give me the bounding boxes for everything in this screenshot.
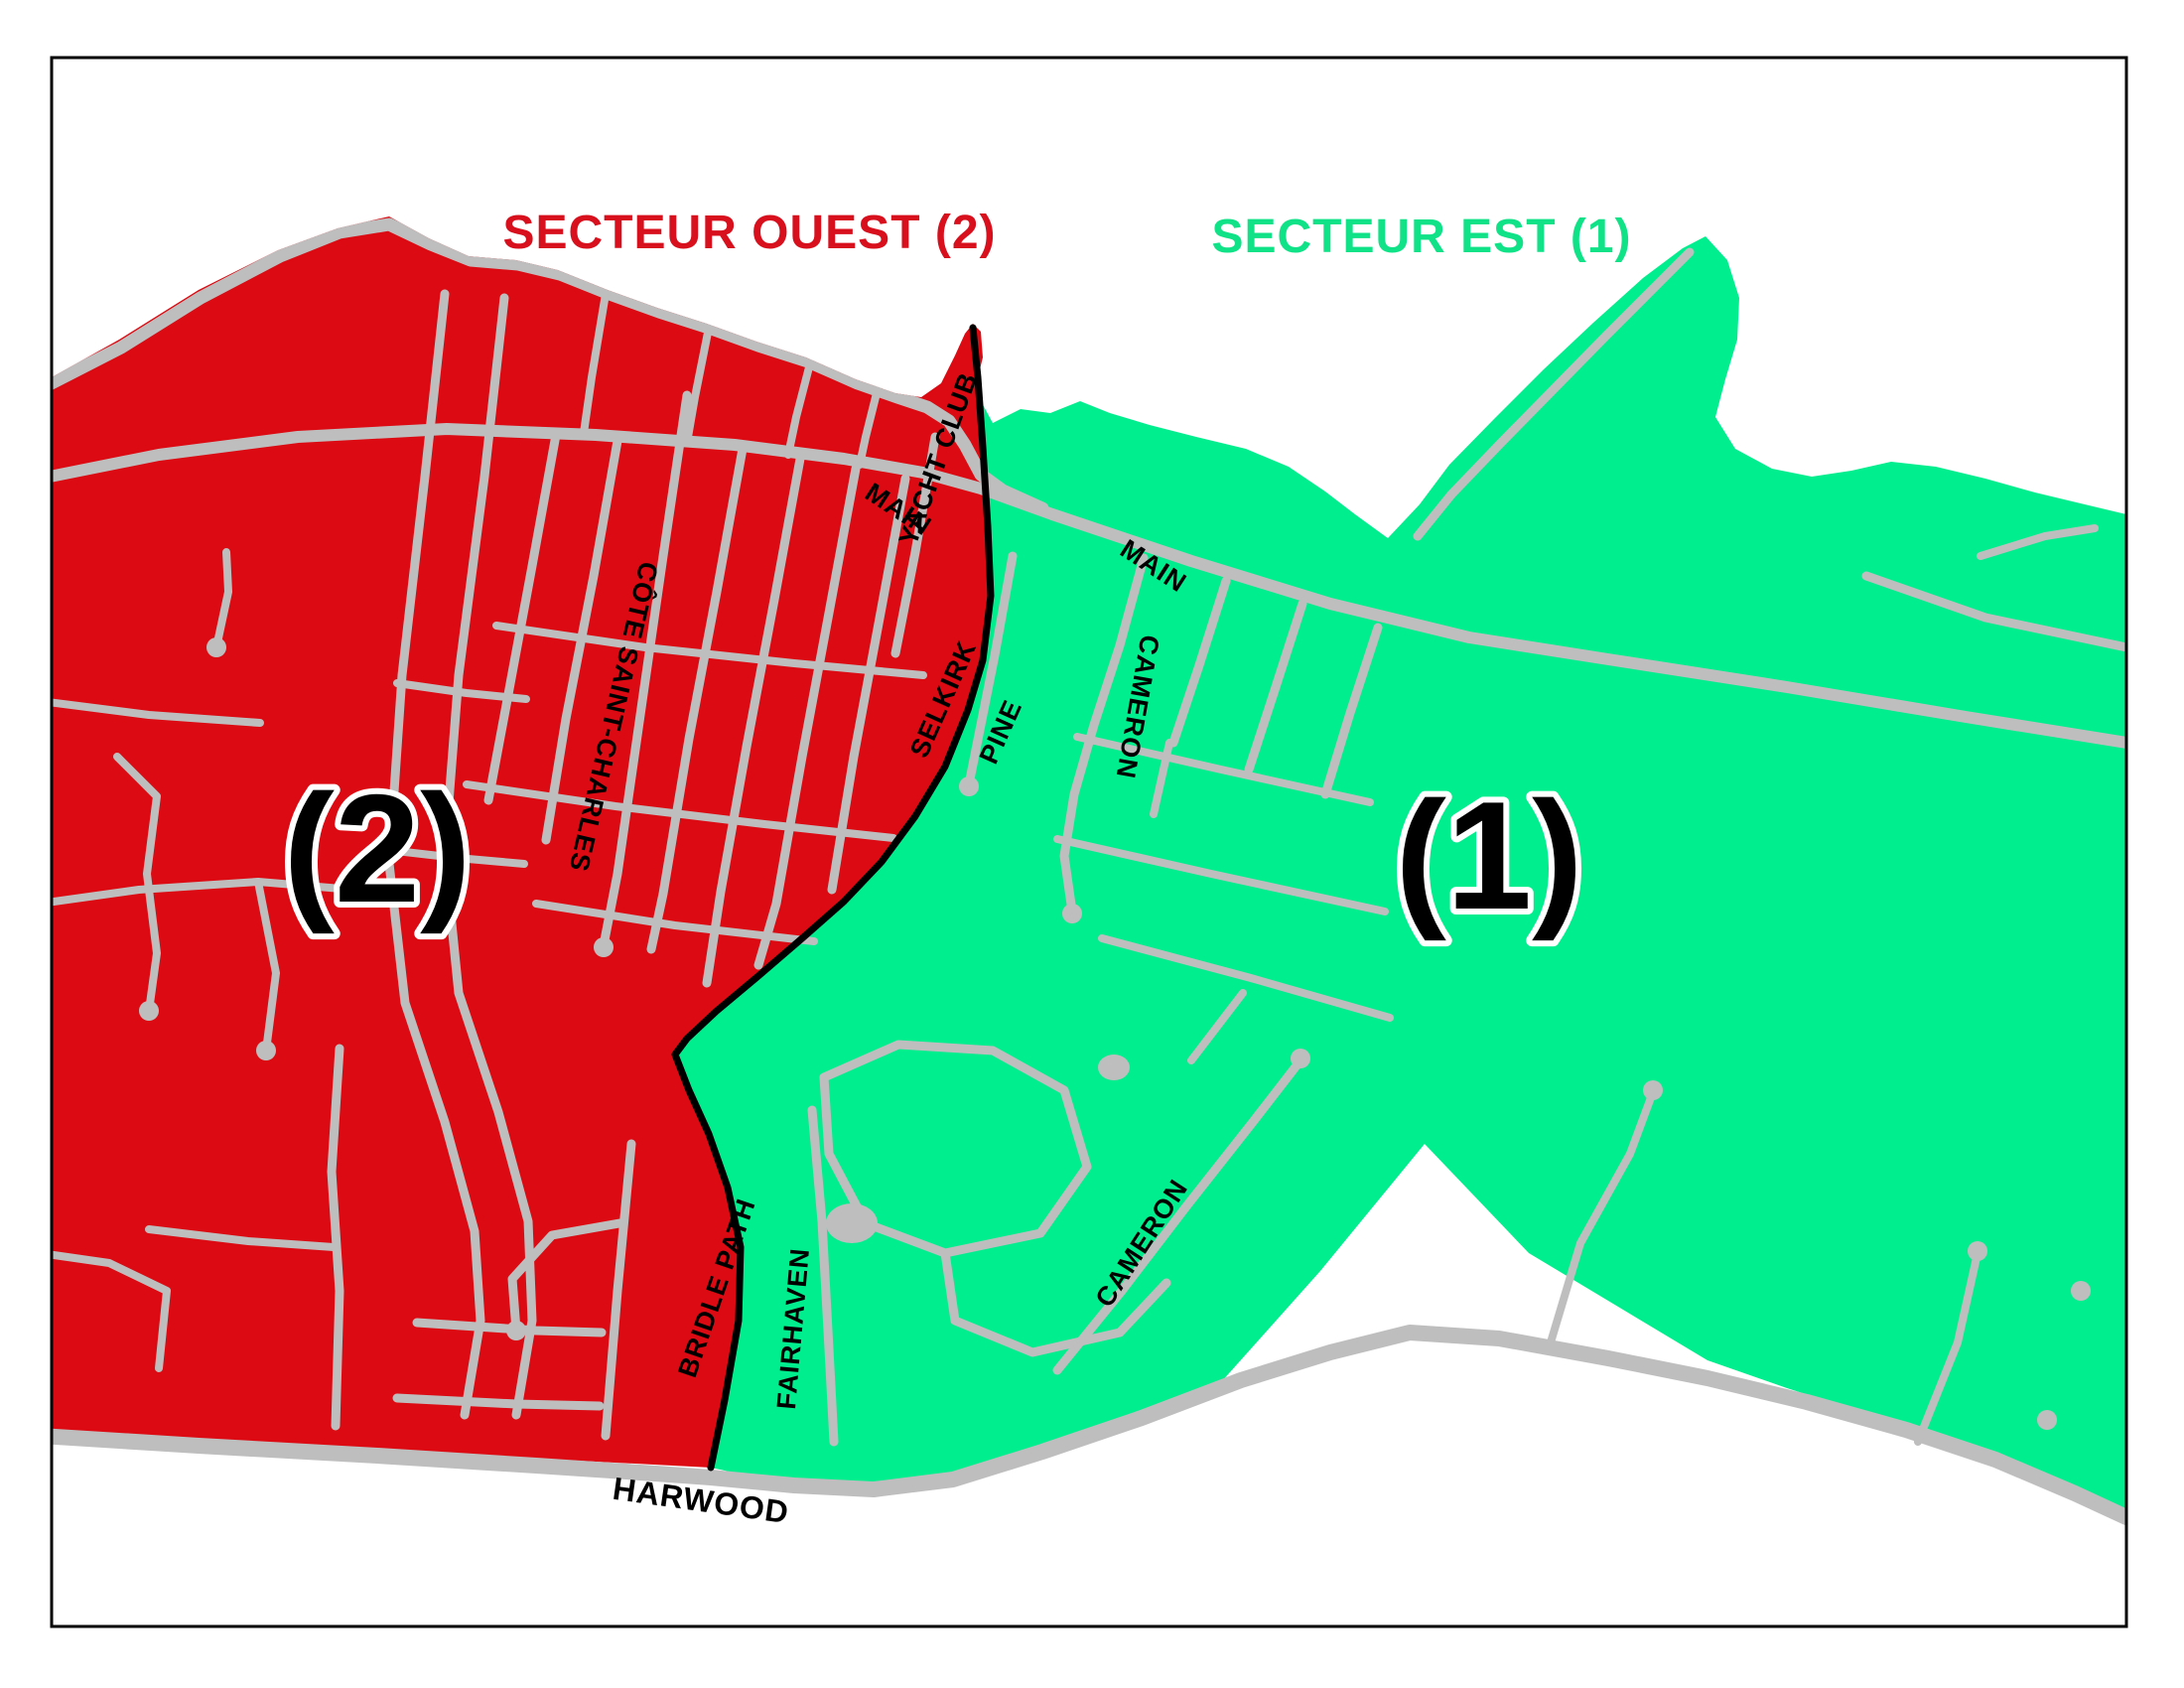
cul-de-sac <box>139 1001 159 1021</box>
cul-de-sac <box>206 637 226 657</box>
paved-area <box>826 1203 878 1243</box>
sector-west-number-label: (2) <box>283 763 471 934</box>
paved-area <box>1098 1055 1130 1080</box>
cul-de-sac <box>2037 1410 2057 1430</box>
road-segment <box>332 1049 340 1426</box>
sector-map: MAIN YACHT CLUB SELKIRK CÔTE SAINT-CHARL… <box>0 0 2184 1688</box>
cul-de-sac <box>256 1041 276 1060</box>
sector-east-number-label: (1) <box>1395 770 1582 941</box>
cul-de-sac <box>594 937 614 957</box>
sector-west-title: SECTEUR OUEST (2) <box>502 207 996 259</box>
cul-de-sac <box>1291 1049 1310 1068</box>
cul-de-sac <box>1968 1241 1987 1261</box>
cul-de-sac <box>1643 1080 1663 1100</box>
cul-de-sac <box>2071 1281 2091 1301</box>
cul-de-sac <box>506 1321 526 1340</box>
cul-de-sac <box>959 776 979 796</box>
sector-east-title: SECTEUR EST (1) <box>1211 211 1631 263</box>
cul-de-sac <box>1062 904 1082 923</box>
